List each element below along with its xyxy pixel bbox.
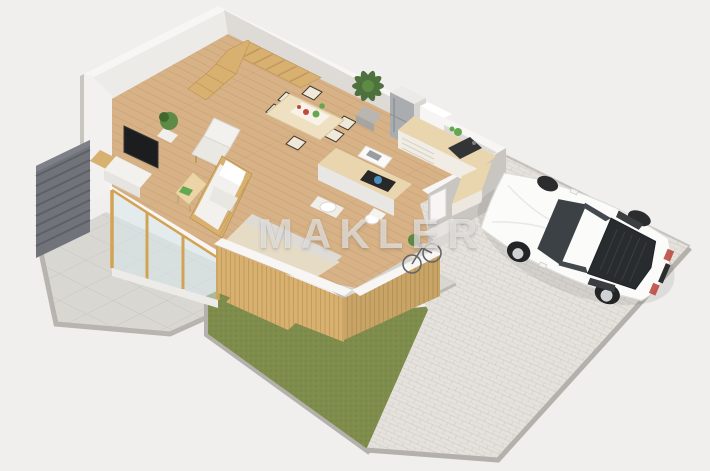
watermark: MAKLER — [258, 210, 486, 258]
fruit-bowl — [454, 128, 462, 136]
kettle — [374, 176, 382, 184]
floorplan-scene: MAKLER — [0, 0, 710, 471]
